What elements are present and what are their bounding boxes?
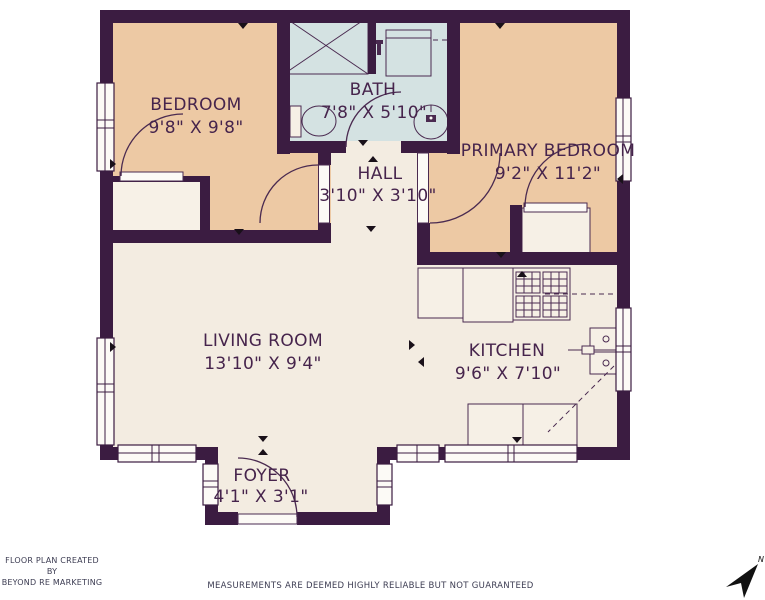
window: [377, 464, 392, 505]
credit-line1: FLOOR PLAN CREATED BY: [0, 555, 104, 577]
window: [97, 338, 114, 445]
window: [616, 98, 631, 181]
kitchen-label: KITCHEN: [469, 341, 545, 361]
floor-plan-page: BEDROOM 9'8" X 9'8" BATH 7'8" X 5'10" HA…: [0, 0, 765, 600]
kitchen-counter: [468, 404, 523, 448]
living-room-dims: 13'10" X 9'4": [204, 354, 322, 374]
kitchen-fridge: [463, 268, 513, 322]
bedroom-closet-door-leaf: [120, 172, 183, 181]
toilet-tank-icon: [290, 106, 301, 137]
foyer-door-leaf: [238, 514, 297, 524]
window: [97, 83, 114, 171]
north-label: N: [758, 555, 764, 564]
kitchen-counter: [418, 268, 463, 318]
bedroom-closet: [110, 182, 200, 230]
hall-dims: 3'10" X 3'10": [319, 186, 437, 206]
shower-head-icon: [375, 40, 383, 44]
bath-door-gap: [346, 141, 401, 153]
floor-plan-drawing: BEDROOM 9'8" X 9'8" BATH 7'8" X 5'10" HA…: [0, 0, 765, 600]
primary-bedroom-label: PRIMARY BEDROOM: [461, 141, 636, 161]
bedroom-label: BEDROOM: [150, 95, 242, 115]
window: [118, 445, 196, 462]
shower-control-icon: [377, 44, 381, 55]
bath-dims: 7'8" X 5'10": [321, 103, 427, 123]
living-room-label: LIVING ROOM: [203, 331, 323, 351]
window: [445, 445, 577, 462]
window: [616, 308, 631, 391]
kitchen-faucet-icon: [582, 346, 594, 354]
bedroom-dims: 9'8" X 9'8": [148, 118, 243, 138]
primary-closet-door-leaf: [524, 203, 587, 212]
foyer-dims: 4'1" X 3'1": [213, 487, 308, 507]
window: [397, 445, 439, 462]
disclaimer-text: MEASUREMENTS ARE DEEMED HIGHLY RELIABLE …: [0, 581, 753, 591]
kitchen-dims: 9'6" X 7'10": [455, 364, 561, 384]
bath-label: BATH: [350, 80, 397, 100]
hall-label: HALL: [358, 164, 403, 184]
primary-bedroom-dims: 9'2" X 11'2": [495, 164, 601, 184]
foyer-label: FOYER: [233, 466, 290, 486]
north-arrow-icon: N: [726, 555, 764, 598]
